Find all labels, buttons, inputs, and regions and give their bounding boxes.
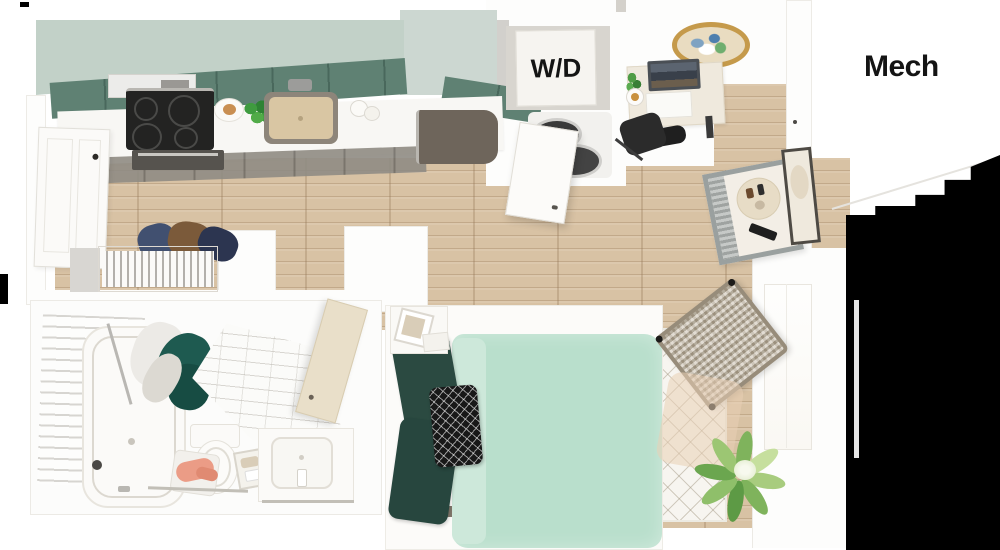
mech-room-label: Mech xyxy=(864,50,984,90)
vanity xyxy=(258,428,354,502)
towel-bar xyxy=(262,500,354,503)
closet-door-knob xyxy=(793,120,797,124)
plant-flower xyxy=(734,460,756,480)
washer-dryer-box: W/D xyxy=(515,29,596,106)
door-panel xyxy=(43,138,73,253)
dresser-tray xyxy=(733,174,784,224)
laptop xyxy=(647,59,700,92)
basket-items xyxy=(240,456,259,469)
croissant xyxy=(223,104,236,115)
accent-pillow xyxy=(429,384,484,468)
perfume-bottle xyxy=(745,188,754,199)
kitchen-sink xyxy=(264,92,338,144)
chair-foot xyxy=(727,278,737,288)
background-artifact-bottom-right xyxy=(846,155,1000,550)
nightstand xyxy=(390,306,448,354)
tub-drain xyxy=(128,438,135,445)
wall-sliver-highlight xyxy=(854,300,859,458)
radiator-bench xyxy=(98,246,218,292)
oven-front xyxy=(132,150,224,170)
tub-spout xyxy=(118,486,130,492)
background-artifact-top-left xyxy=(20,2,29,7)
coffee-cup xyxy=(626,88,644,106)
laptop-screen xyxy=(650,62,697,88)
cosmetic-jar xyxy=(754,200,766,211)
window-mullion xyxy=(786,284,787,448)
washer-dryer-label: W/D xyxy=(530,52,581,84)
latte xyxy=(631,93,639,101)
kitchen-faucet xyxy=(288,79,312,91)
entry-side-table xyxy=(70,248,100,292)
wood-floor-desk-hall-2 xyxy=(714,84,790,168)
burner xyxy=(132,123,162,151)
burner xyxy=(134,97,158,121)
oven-handle xyxy=(138,153,218,156)
door-handle xyxy=(551,205,558,210)
duvet xyxy=(452,334,662,548)
soap-pump xyxy=(297,469,307,487)
stove-cooktop xyxy=(126,88,214,150)
sink-drain xyxy=(298,116,303,121)
tv-remote xyxy=(748,223,777,241)
mug xyxy=(364,106,380,121)
burner xyxy=(168,95,200,127)
floor-plan-canvas: W/D xyxy=(0,0,1000,550)
book xyxy=(422,332,450,353)
burner xyxy=(174,127,198,149)
dishwasher xyxy=(416,110,498,164)
background-artifact-left xyxy=(0,274,8,304)
mirror-reflection xyxy=(789,164,810,200)
perfume-bottle xyxy=(757,184,765,196)
desk-leg xyxy=(705,116,714,138)
door-handle xyxy=(308,394,314,400)
sink-drain xyxy=(299,455,304,460)
potted-plant xyxy=(700,428,788,510)
tub-faucet xyxy=(92,460,102,470)
window xyxy=(764,284,812,450)
